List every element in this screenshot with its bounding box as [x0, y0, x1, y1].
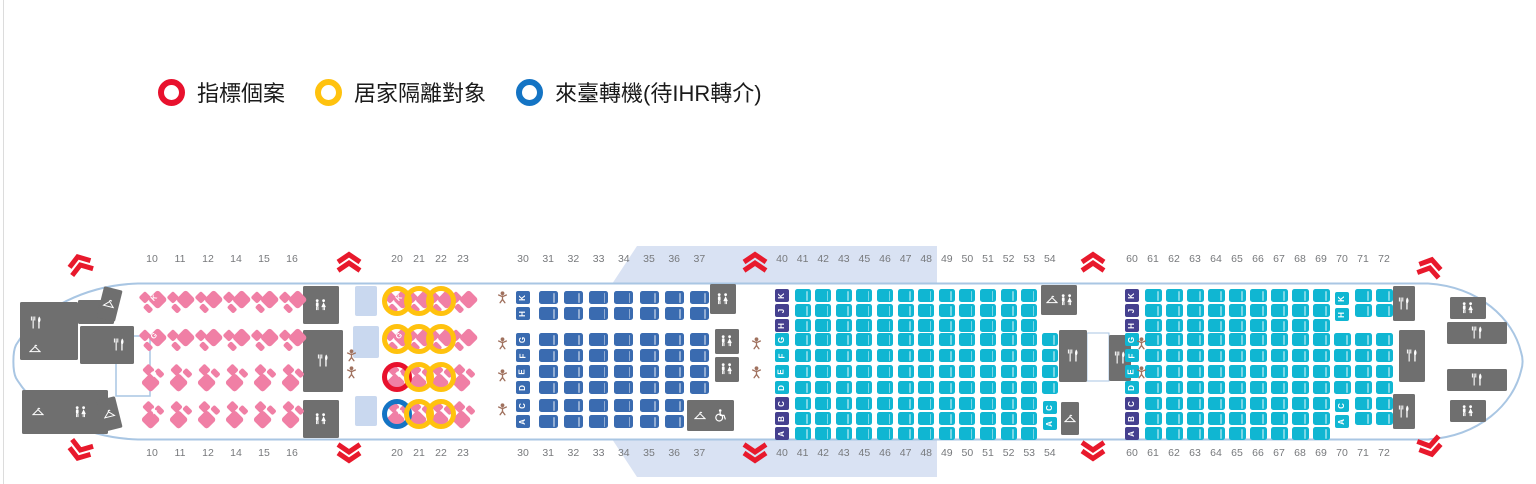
column-letter-G: G [778, 336, 786, 342]
seat-66D [1250, 381, 1267, 394]
seat-67C [1271, 397, 1288, 410]
seat-37H [690, 307, 709, 320]
wardrobe-block [355, 286, 377, 316]
seat-63K [1187, 289, 1204, 302]
row-number-42-top: 42 [817, 253, 829, 266]
seat-53F [1021, 349, 1037, 362]
seat-61E [1145, 365, 1162, 378]
column-letter-G: G [519, 336, 527, 342]
seat-36E [665, 365, 684, 378]
seat-45E [856, 365, 872, 378]
column-letter-E: E [519, 369, 527, 374]
seat-64H [1208, 319, 1225, 332]
seat-50B [959, 412, 975, 425]
seat-41G [795, 333, 811, 346]
seat-53G [1021, 333, 1037, 346]
seat-71F [1355, 349, 1372, 362]
seat-34C [614, 399, 633, 412]
bassinet-icon [497, 403, 508, 416]
seat-61K [1145, 289, 1162, 302]
column-letter-A: A [778, 431, 786, 437]
row-number-16-top: 16 [286, 253, 298, 266]
lavatory-icon [1461, 302, 1474, 314]
row-number-48-bottom: 48 [920, 447, 932, 460]
letter-box-40-E: E [775, 365, 789, 378]
letter-box-70-H: H [1335, 308, 1349, 321]
seat-47G [898, 333, 914, 346]
row-number-49-top: 49 [941, 253, 953, 266]
lavatory-icon [716, 293, 729, 305]
row-number-37-top: 37 [694, 253, 706, 266]
seat-53K [1021, 289, 1037, 302]
seat-71E [1355, 365, 1372, 378]
row-number-69-top: 69 [1315, 253, 1327, 266]
galley-block [1393, 394, 1415, 429]
seat-33E [589, 365, 608, 378]
seat-50A [959, 427, 975, 440]
seat-53H [1021, 319, 1037, 332]
row-number-67-top: 67 [1273, 253, 1285, 266]
lavatory-block [715, 329, 739, 354]
seat-37K [690, 291, 709, 304]
seat-47B [898, 412, 914, 425]
letter-box-60-B: B [1125, 412, 1139, 425]
seat-63B [1187, 412, 1204, 425]
seat-46K [877, 289, 893, 302]
galley-icon [1398, 297, 1410, 310]
seat-72F [1376, 349, 1393, 362]
letter-box-60-K: K [1125, 289, 1139, 302]
row-number-42-bottom: 42 [817, 447, 829, 460]
seat-49E [939, 365, 955, 378]
seat-68D [1292, 381, 1309, 394]
column-letter-D: D [778, 385, 786, 391]
seat-42C [815, 397, 831, 410]
row-number-21-top: 21 [413, 253, 425, 266]
seat-49A [939, 427, 955, 440]
galley-icon [1067, 349, 1079, 362]
row-number-46-bottom: 46 [879, 447, 891, 460]
letter-box-70-C: C [1335, 399, 1349, 412]
bassinet-icon [346, 366, 357, 379]
seat-48D [918, 381, 934, 394]
row-number-61-top: 61 [1147, 253, 1159, 266]
seat-68K [1292, 289, 1309, 302]
seat-50J [959, 304, 975, 317]
seat-50F [959, 349, 975, 362]
case-marker-22K-quarantine [426, 286, 456, 316]
seat-61H [1145, 319, 1162, 332]
exit-arrow-down [334, 442, 364, 464]
seat-63H [1187, 319, 1204, 332]
letter-box-30-K: K [516, 291, 530, 304]
seat-54D [1042, 381, 1058, 394]
lavatory-icon [1461, 405, 1474, 417]
galley-icon-wrap [30, 316, 42, 329]
seat-51F [980, 349, 996, 362]
seat-53C [1021, 397, 1037, 410]
exit-arrow-up [1078, 251, 1108, 273]
seat-68C [1292, 397, 1309, 410]
letter-box-40-J: J [775, 304, 789, 317]
seat-49K [939, 289, 955, 302]
seat-51K [980, 289, 996, 302]
row-number-23-bottom: 23 [457, 447, 469, 460]
row-number-49-bottom: 49 [941, 447, 953, 460]
wheelchair-icon [714, 409, 727, 422]
seat-52G [1001, 333, 1017, 346]
seat-43G [836, 333, 852, 346]
column-letter-H: H [1128, 323, 1136, 329]
bassinet-position [346, 366, 357, 379]
seat-52C [1001, 397, 1017, 410]
column-letter-E: E [778, 369, 786, 374]
seat-37G [690, 333, 709, 346]
galley-icon [113, 338, 125, 351]
column-letter-C: C [1046, 405, 1054, 411]
seat-35E [640, 365, 659, 378]
row-number-43-bottom: 43 [838, 447, 850, 460]
seat-52H [1001, 319, 1017, 332]
bassinet-icon [497, 369, 508, 382]
seat-35G [640, 333, 659, 346]
closet-block [1061, 402, 1079, 435]
column-letter-D: D [519, 385, 527, 391]
seat-41B [795, 412, 811, 425]
seat-62K [1166, 289, 1183, 302]
bassinet-icon [751, 337, 762, 350]
seat-49F [939, 349, 955, 362]
seat-48J [918, 304, 934, 317]
row-number-32-top: 32 [568, 253, 580, 266]
seat-42G [815, 333, 831, 346]
column-letter-C: C [778, 401, 786, 407]
seat-69H [1313, 319, 1330, 332]
letter-box-40-D: D [775, 381, 789, 394]
nose-lavatory-block [22, 390, 108, 434]
exit-chevron-icon [334, 442, 364, 464]
lavatory-icon [314, 299, 327, 311]
seat-51C [980, 397, 996, 410]
seat-32D [564, 381, 583, 394]
lavatory-block [715, 357, 739, 382]
column-letter-H: H [1338, 312, 1346, 318]
column-letter-F: F [778, 353, 786, 358]
seat-46C [877, 397, 893, 410]
row-number-40-bottom: 40 [776, 447, 788, 460]
column-letter-F: F [519, 353, 527, 358]
letter-box-54-C: C [1043, 401, 1057, 414]
lavatory-block [710, 284, 736, 314]
galley-icon [1406, 349, 1418, 362]
column-letter-K: K [1128, 293, 1136, 299]
seat-54F [1042, 349, 1058, 362]
seat-45F [856, 349, 872, 362]
seat-67K [1271, 289, 1288, 302]
bassinet-icon [1136, 337, 1147, 350]
seat-45H [856, 319, 872, 332]
letter-box-60-H: H [1125, 319, 1139, 332]
row-number-11-top: 11 [175, 253, 186, 266]
hanger-icon-wrap [1046, 295, 1058, 304]
seat-32A [564, 415, 583, 428]
person2-icon-wrap [1461, 405, 1474, 417]
seat-46B [877, 412, 893, 425]
closet-hanger-icon [102, 298, 116, 310]
seat-63C [1187, 397, 1204, 410]
seat-33K [589, 291, 608, 304]
exit-chevron-icon [1078, 440, 1108, 462]
tail-lavatory-block [1450, 400, 1486, 422]
galley-icon-wrap [113, 338, 125, 351]
column-letter-A: A [1338, 419, 1346, 425]
seat-63G [1187, 333, 1204, 346]
lavatory-block [303, 286, 339, 324]
row-number-54-top: 54 [1044, 253, 1056, 266]
row-number-31-top: 31 [542, 253, 554, 266]
exit-arrow-down [740, 442, 770, 464]
seat-48G [918, 333, 934, 346]
seat-61B [1145, 412, 1162, 425]
seat-62B [1166, 412, 1183, 425]
seat-35F [640, 349, 659, 362]
seat-43F [836, 349, 852, 362]
seat-41F [795, 349, 811, 362]
seat-49B [939, 412, 955, 425]
row-number-51-top: 51 [982, 253, 994, 266]
column-letter-A: A [519, 419, 527, 425]
seat-37E [690, 365, 709, 378]
seat-32K [564, 291, 583, 304]
row-number-22-top: 22 [435, 253, 447, 266]
seat-67B [1271, 412, 1288, 425]
seat-50E [959, 365, 975, 378]
seat-61J [1145, 304, 1162, 317]
seat-36K [665, 291, 684, 304]
person2-icon-wrap [1060, 294, 1073, 306]
seat-45K [856, 289, 872, 302]
seat-46G [877, 333, 893, 346]
seat-65A [1229, 427, 1246, 440]
letter-box-30-F: F [516, 349, 530, 362]
closet-hanger-icon [32, 407, 44, 416]
letter-box-40-A: A [775, 427, 789, 440]
galley-block [1059, 330, 1087, 382]
seat-68H [1292, 319, 1309, 332]
row-number-33-bottom: 33 [593, 447, 605, 460]
seat-64F [1208, 349, 1225, 362]
hanger-icon-wrap [29, 344, 41, 353]
galley-icon-wrap [1471, 326, 1483, 339]
seat-66G [1250, 333, 1267, 346]
bassinet-icon [1136, 366, 1147, 379]
seat-45G [856, 333, 872, 346]
seat-52K [1001, 289, 1017, 302]
seat-64G [1208, 333, 1225, 346]
row-number-37-bottom: 37 [694, 447, 706, 460]
closet-hanger-icon [102, 408, 116, 420]
row-number-64-bottom: 64 [1210, 447, 1222, 460]
seat-54G [1042, 333, 1058, 346]
seat-62D [1166, 381, 1183, 394]
galley-icon-wrap [1067, 349, 1079, 362]
seat-43H [836, 319, 852, 332]
seat-51E [980, 365, 996, 378]
seat-65H [1229, 319, 1246, 332]
seat-66C [1250, 397, 1267, 410]
row-number-69-bottom: 69 [1315, 447, 1327, 460]
row-number-60-top: 60 [1126, 253, 1138, 266]
seat-41A [795, 427, 811, 440]
row-number-50-bottom: 50 [962, 447, 974, 460]
column-letter-E: E [1128, 369, 1136, 374]
seat-65B [1229, 412, 1246, 425]
seat-66B [1250, 412, 1267, 425]
bassinet-icon [497, 291, 508, 304]
seat-66J [1250, 304, 1267, 317]
bassinet-icon [346, 349, 357, 362]
row-number-34-top: 34 [618, 253, 630, 266]
seat-70D [1334, 381, 1351, 394]
row-number-34-bottom: 34 [618, 447, 630, 460]
closet-hanger-icon [29, 344, 41, 353]
seat-31C [539, 399, 558, 412]
seat-63E [1187, 365, 1204, 378]
row-number-70-top: 70 [1336, 253, 1348, 266]
wardrobe-block [355, 396, 377, 426]
seat-47A [898, 427, 914, 440]
seat-33A [589, 415, 608, 428]
letter-box-40-H: H [775, 319, 789, 332]
row-number-14-bottom: 14 [230, 447, 242, 460]
seat-31H [539, 307, 558, 320]
row-number-51-bottom: 51 [982, 447, 994, 460]
seat-52F [1001, 349, 1017, 362]
case-marker-22D-quarantine [426, 362, 456, 392]
seat-72C [1376, 397, 1393, 410]
row-number-31-bottom: 31 [542, 447, 554, 460]
exit-arrow-up [740, 251, 770, 273]
person2-icon-wrap [716, 293, 729, 305]
row-number-62-bottom: 62 [1168, 447, 1180, 460]
seat-66F [1250, 349, 1267, 362]
seat-69F [1313, 349, 1330, 362]
person2-icon-wrap [1461, 302, 1474, 314]
seat-46F [877, 349, 893, 362]
seat-33D [589, 381, 608, 394]
seat-48H [918, 319, 934, 332]
seat-32E [564, 365, 583, 378]
seat-34E [614, 365, 633, 378]
wheelchair-icon-wrap [714, 409, 727, 422]
letter-box-30-C: C [516, 399, 530, 412]
seat-51B [980, 412, 996, 425]
seat-49D [939, 381, 955, 394]
seat-69G [1313, 333, 1330, 346]
seat-72D [1376, 381, 1393, 394]
seat-45J [856, 304, 872, 317]
seat-42B [815, 412, 831, 425]
seat-34G [614, 333, 633, 346]
seat-52A [1001, 427, 1017, 440]
row-number-72-bottom: 72 [1378, 447, 1390, 460]
row-number-43-top: 43 [838, 253, 850, 266]
seat-66K [1250, 289, 1267, 302]
seat-72H [1376, 304, 1393, 317]
row-number-60-bottom: 60 [1126, 447, 1138, 460]
seat-45B [856, 412, 872, 425]
mid-galley-partition [1087, 333, 1109, 381]
seat-68E [1292, 365, 1309, 378]
row-number-40-top: 40 [776, 253, 788, 266]
seat-34A [614, 415, 633, 428]
person2-icon-wrap [74, 406, 87, 418]
galley-icon-wrap [317, 354, 329, 367]
seat-42D [815, 381, 831, 394]
seat-64C [1208, 397, 1225, 410]
row-number-47-top: 47 [900, 253, 912, 266]
seat-51H [980, 319, 996, 332]
row-number-71-top: 71 [1357, 253, 1369, 266]
bassinet-icon [497, 337, 508, 350]
seat-46E [877, 365, 893, 378]
seat-34F [614, 349, 633, 362]
seat-61F [1145, 349, 1162, 362]
seat-66H [1250, 319, 1267, 332]
seat-41D [795, 381, 811, 394]
seat-47K [898, 289, 914, 302]
seat-67H [1271, 319, 1288, 332]
letter-box-40-C: C [775, 397, 789, 410]
seat-72A [1376, 412, 1393, 425]
seat-65C [1229, 397, 1246, 410]
column-letter-A: A [1128, 431, 1136, 437]
row-number-68-top: 68 [1294, 253, 1306, 266]
seat-36G [665, 333, 684, 346]
galley-icon [1398, 405, 1410, 418]
seat-35K [640, 291, 659, 304]
row-number-61-bottom: 61 [1147, 447, 1159, 460]
seat-72E [1376, 365, 1393, 378]
bassinet-position [1136, 366, 1147, 379]
seat-64J [1208, 304, 1225, 317]
row-number-68-bottom: 68 [1294, 447, 1306, 460]
row-number-70-bottom: 70 [1336, 447, 1348, 460]
seat-31F [539, 349, 558, 362]
letter-box-40-G: G [775, 333, 789, 346]
seat-50G [959, 333, 975, 346]
column-letter-H: H [519, 311, 527, 317]
seat-43C [836, 397, 852, 410]
seat-48B [918, 412, 934, 425]
seat-69K [1313, 289, 1330, 302]
seat-63D [1187, 381, 1204, 394]
seat-46H [877, 319, 893, 332]
seat-65F [1229, 349, 1246, 362]
seat-32C [564, 399, 583, 412]
galley-icon-wrap [1406, 349, 1418, 362]
seat-35C [640, 399, 659, 412]
row-number-65-top: 65 [1231, 253, 1243, 266]
seat-41H [795, 319, 811, 332]
seat-46J [877, 304, 893, 317]
row-number-45-top: 45 [859, 253, 871, 266]
closet-hanger-icon [1046, 295, 1058, 304]
seat-34H [614, 307, 633, 320]
row-number-45-bottom: 45 [859, 447, 871, 460]
seat-37D [690, 381, 709, 394]
seat-69C [1313, 397, 1330, 410]
